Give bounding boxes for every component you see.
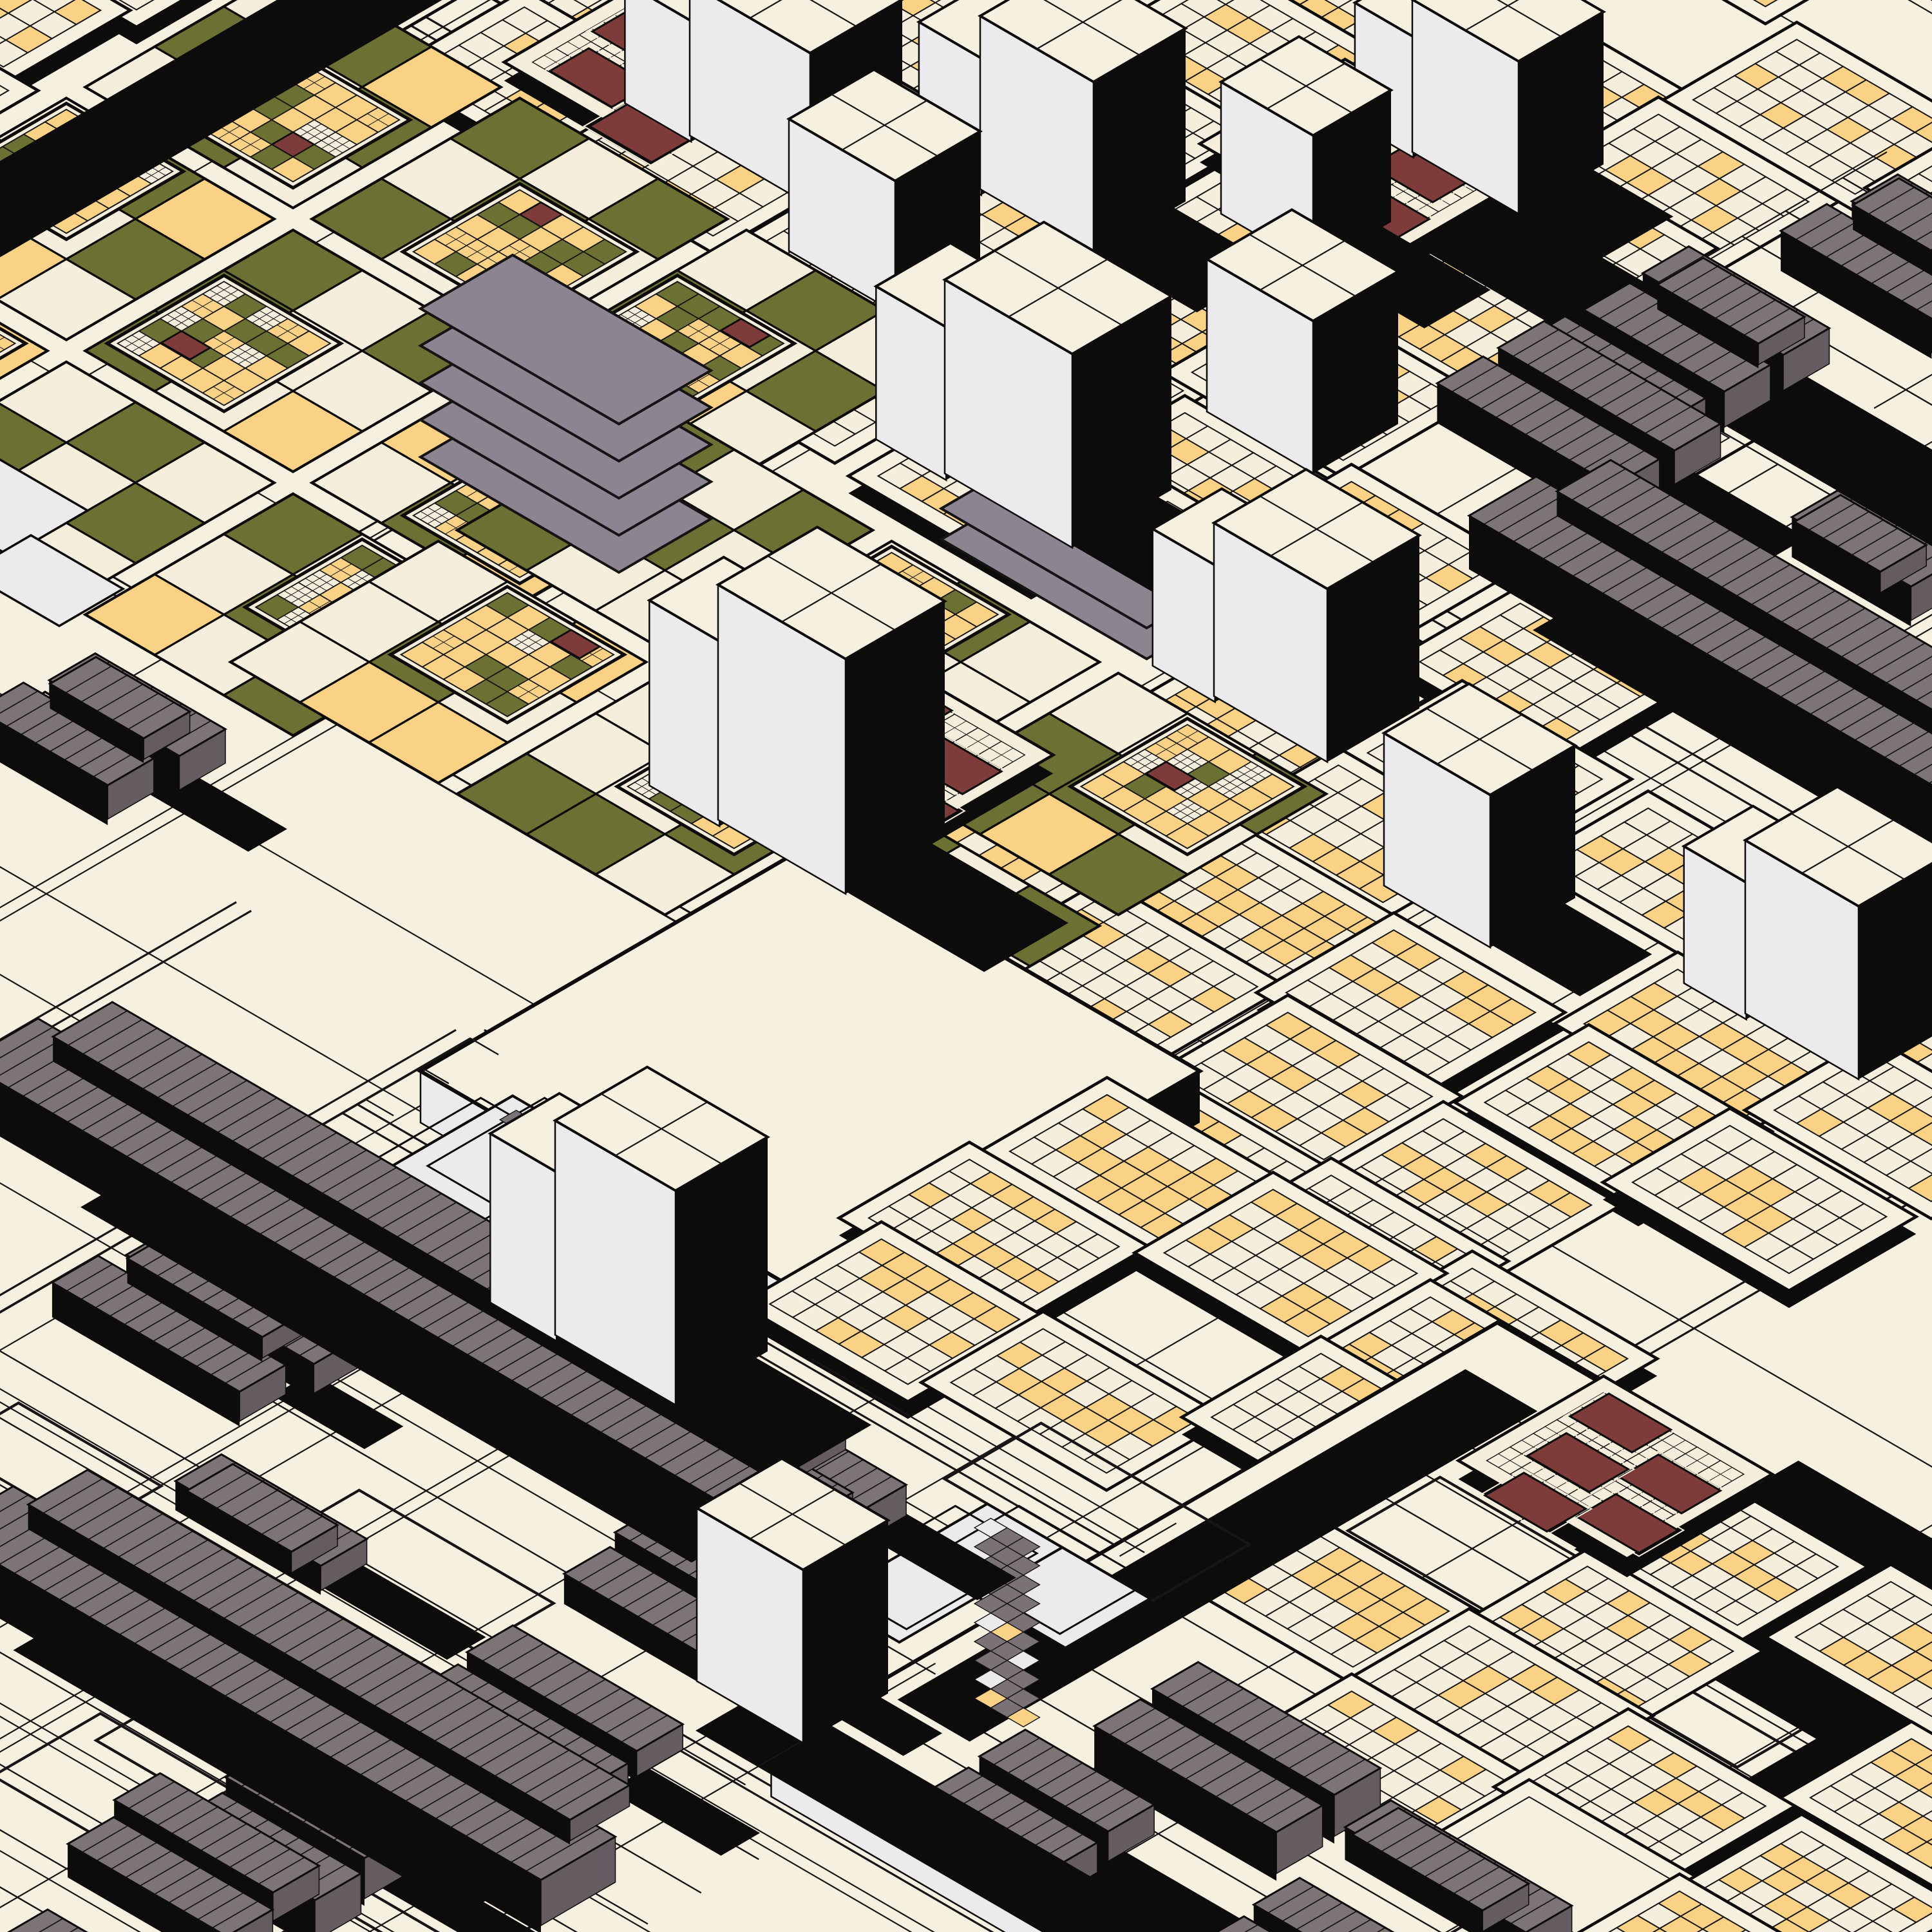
- isometric-city-map-stage: [0, 0, 1932, 1932]
- isometric-city-map: [0, 0, 1932, 1932]
